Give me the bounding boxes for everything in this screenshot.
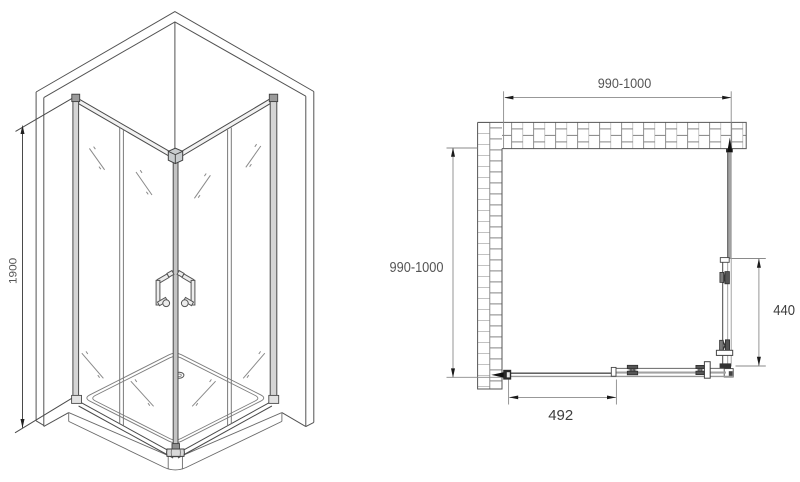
svg-text:440: 440 <box>773 303 795 319</box>
svg-text:990-1000: 990-1000 <box>390 259 444 276</box>
svg-text:990-1000: 990-1000 <box>598 76 652 91</box>
svg-text:1900: 1900 <box>7 258 19 284</box>
svg-text:492: 492 <box>548 407 573 424</box>
